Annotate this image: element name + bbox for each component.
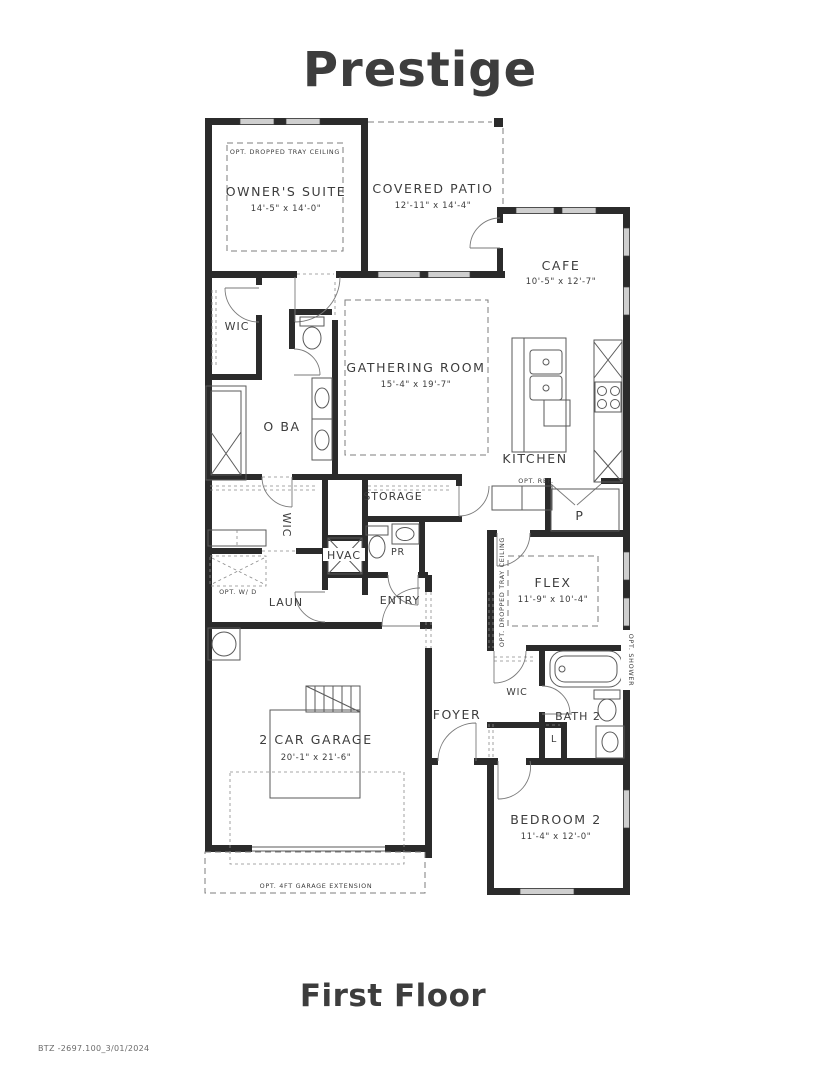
plan-title: Prestige (303, 42, 537, 98)
gathering-room-label: GATHERING ROOM (346, 360, 485, 375)
opt-ref-label: OPT. REF. (518, 477, 554, 485)
flex-label: FLEX (534, 575, 571, 590)
bedroom2-label: BEDROOM 2 (510, 812, 602, 827)
door-swings (225, 218, 601, 799)
gathering-room-outline (345, 300, 488, 455)
doc-code: BTZ -2697.100_3/01/2024 (38, 1044, 149, 1053)
windows (240, 119, 630, 895)
pr-toilet-tank (366, 526, 388, 535)
oba-sink-2 (315, 430, 329, 450)
bedroom2-dims: 11'-4" x 12'-0" (521, 832, 592, 842)
garage-label: 2 CAR GARAGE (259, 732, 372, 747)
gathering-room-dims: 15'-4" x 19'-7" (381, 380, 452, 390)
kitchen-sink-1 (530, 350, 562, 374)
powder-label: PR (391, 547, 405, 558)
bath2-label: BATH 2 (555, 710, 601, 723)
opt-tray-flex-label: OPT. DROPPED TRAY CEILING (498, 537, 506, 647)
owners-bath-label: O BA (263, 419, 300, 434)
opt-garage-extension-label: OPT. 4FT GARAGE EXTENSION (260, 882, 373, 890)
floor-plan: Prestige OPT. DROPPED TRAY CEILING OWNER… (0, 0, 835, 1080)
bath2-sink (602, 732, 618, 752)
dashed-lines (205, 122, 598, 893)
opt-wd-label: OPT. W/ D (219, 588, 257, 596)
pantry-shelf (551, 489, 619, 531)
owners-suite-label: OWNER'S SUITE (226, 184, 347, 199)
flex-dims: 11'-9" x 10'-4" (518, 595, 589, 605)
garage-door (252, 847, 385, 851)
cafe-dims: 10'-5" x 12'-7" (526, 277, 597, 287)
owners-suite-dims: 14'-5" x 14'-0" (251, 204, 322, 214)
oba-toilet-bowl (303, 327, 321, 349)
opt-shower-label: OPT. SHOWER (627, 634, 635, 686)
bath2-vanity (596, 726, 624, 758)
kitchen-island (512, 338, 566, 452)
linen-label: L (551, 734, 557, 745)
cafe-label: CAFE (542, 258, 581, 273)
kitchen-label: KITCHEN (502, 451, 567, 466)
covered-patio-label: COVERED PATIO (372, 181, 493, 196)
pr-sink (396, 528, 414, 541)
walls (205, 118, 630, 895)
storage-label: STORAGE (363, 490, 422, 503)
floor-plan-page: Prestige OPT. DROPPED TRAY CEILING OWNER… (0, 0, 835, 1080)
kitchen-counter (594, 340, 622, 482)
covered-patio-dims: 12'-11" x 14'-4" (395, 201, 472, 211)
bed2-wic-label: WIC (506, 687, 527, 698)
water-heater (208, 628, 240, 660)
entry-label: ENTRY (380, 594, 421, 607)
hvac-label: HVAC (327, 549, 361, 562)
pr-toilet-bowl (369, 536, 385, 558)
foyer-label: FOYER (433, 707, 482, 722)
pantry-label: P (575, 508, 584, 523)
garage-dims: 20'-1" x 21'-6" (281, 753, 352, 763)
floor-label: First Floor (300, 978, 487, 1014)
bath2-toilet-tank (594, 690, 620, 699)
opt-tray-owners-label: OPT. DROPPED TRAY CEILING (230, 148, 340, 156)
oba-sink-1 (315, 388, 329, 408)
laundry-label: LAUN (269, 596, 303, 609)
hall-wic-label: WIC (280, 513, 293, 538)
kitchen-sink-2 (530, 376, 562, 400)
owners-wic-label: WIC (225, 320, 250, 333)
opt-tray-flex-outline (508, 556, 598, 626)
opt-washer-dryer-outline (210, 556, 266, 586)
